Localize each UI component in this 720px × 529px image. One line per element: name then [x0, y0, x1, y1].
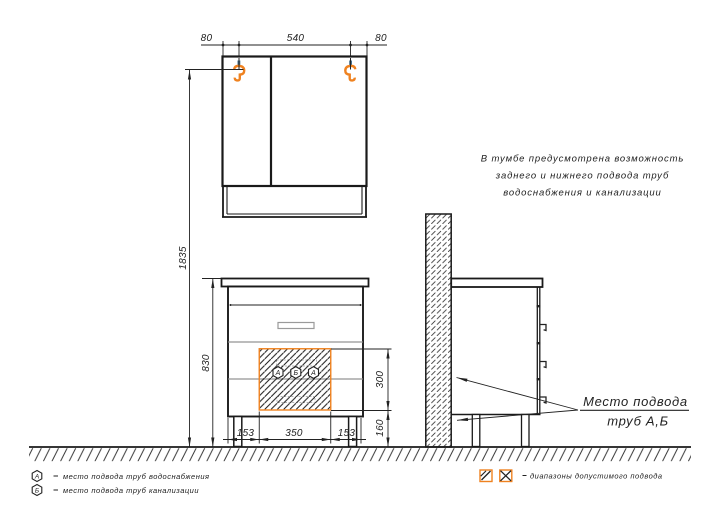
svg-text:Б: Б: [35, 487, 39, 494]
svg-text:80: 80: [375, 33, 387, 44]
svg-text:диапазоны допустимого подвода: диапазоны допустимого подвода: [530, 472, 663, 481]
svg-text:540: 540: [287, 33, 305, 44]
svg-text:А: А: [34, 473, 39, 480]
svg-text:80: 80: [201, 33, 213, 44]
svg-text:В тумбе предусмотрена возможно: В тумбе предусмотрена возможность: [481, 154, 684, 165]
svg-text:труб А,Б: труб А,Б: [607, 414, 669, 429]
svg-text:300: 300: [375, 371, 386, 389]
svg-text:место подвода труб водоснабжен: место подвода труб водоснабжения: [63, 472, 210, 481]
svg-text:А: А: [275, 370, 281, 377]
svg-text:153: 153: [237, 428, 255, 439]
svg-text:153: 153: [338, 428, 356, 439]
svg-text:место подвода труб канализации: место подвода труб канализации: [63, 486, 199, 495]
svg-text:830: 830: [201, 354, 212, 372]
svg-text:водоснабжения и канализации: водоснабжения и канализации: [503, 188, 661, 199]
svg-text:Место подвода: Место подвода: [583, 394, 688, 409]
svg-text:А: А: [310, 370, 316, 377]
svg-text:160: 160: [375, 419, 386, 437]
svg-text:заднего и нижнего подвода труб: заднего и нижнего подвода труб: [495, 171, 669, 182]
svg-text:1835: 1835: [178, 246, 189, 270]
svg-text:350: 350: [285, 428, 303, 439]
svg-text:Б: Б: [294, 370, 299, 377]
